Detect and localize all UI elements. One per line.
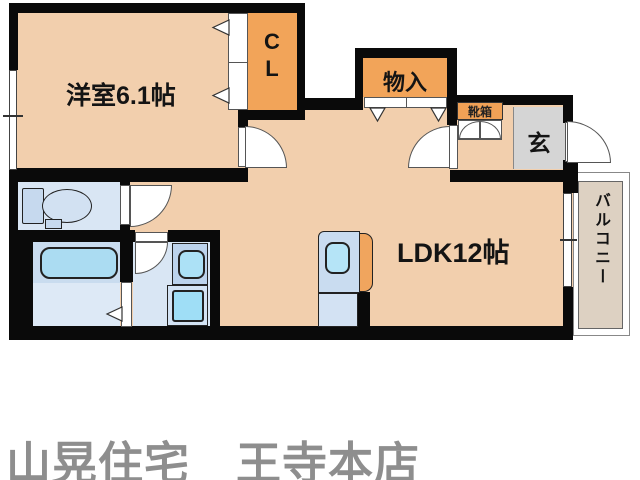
wall-bottom [9,326,573,340]
wall-left-lower [9,170,18,340]
wall-top [9,3,305,13]
washing-machine [172,290,204,322]
closet-door-triangle [212,87,229,104]
closet-label: C L [247,28,297,82]
shoe-box: 靴箱 [457,102,503,120]
footer-brand: 山晃住宅 王寺本店 [6,427,420,480]
washroom-door-panel [135,232,168,242]
window-western-room [9,70,17,170]
bathtub [40,247,118,279]
entrance-label: 玄 [513,124,565,158]
window-tick [560,239,577,241]
closet-door-triangle [212,19,229,36]
storage-door-triangle [369,107,386,122]
bath-door-triangle [106,306,123,322]
wall-toilet-right-upper [120,170,130,185]
wall-bath-divider [120,242,133,282]
balcony-label: バルコニー [588,192,612,332]
outside-notch [355,0,457,48]
wall-closet-bottom [245,110,305,120]
closet-label-line2: L [247,55,297,82]
shoe-box-label: 靴箱 [468,103,492,120]
toilet-bowl [42,189,92,223]
storage-door-triangle [430,107,447,122]
ldk-label: LDK12帖 [397,231,510,270]
toilet-tank [22,188,44,224]
outside-notch [305,0,355,98]
closet-label-line1: C [247,28,297,55]
wall-storage-top [355,48,457,58]
wall-pipe-space [18,238,33,328]
wall-storage-right [447,58,457,125]
storage-label: 物入 [363,65,447,97]
wall-kitchen-stub [358,292,370,326]
closet-door-strip [228,13,248,110]
wall-right-lower [563,287,573,340]
toilet-door-panel [120,185,130,225]
kitchen-sink [325,242,350,274]
outside-notch [457,0,573,95]
wall-washroom-right [210,235,220,326]
wall-storage-left [355,58,363,110]
wall-left-upper [9,13,18,70]
wall-genkan-bottom [450,170,578,182]
western-room-label: 洋室6.1帖 [66,76,176,112]
shoe-box-doors [458,120,502,140]
hall-door-panel [449,125,458,169]
window-tick [3,115,23,117]
sink-bowl [178,250,205,279]
wall-hall-top [297,98,363,110]
wall-entrance-right-upper [563,95,573,123]
kitchen-lower-unit [318,293,358,327]
floorplan-image: 靴箱 洋室6.1帖 LDK12帖 物入 玄 C L バルコニー 山晃住宅 王寺本… [0,0,640,480]
toilet-base [45,219,62,229]
entrance-door-arc [567,121,611,163]
